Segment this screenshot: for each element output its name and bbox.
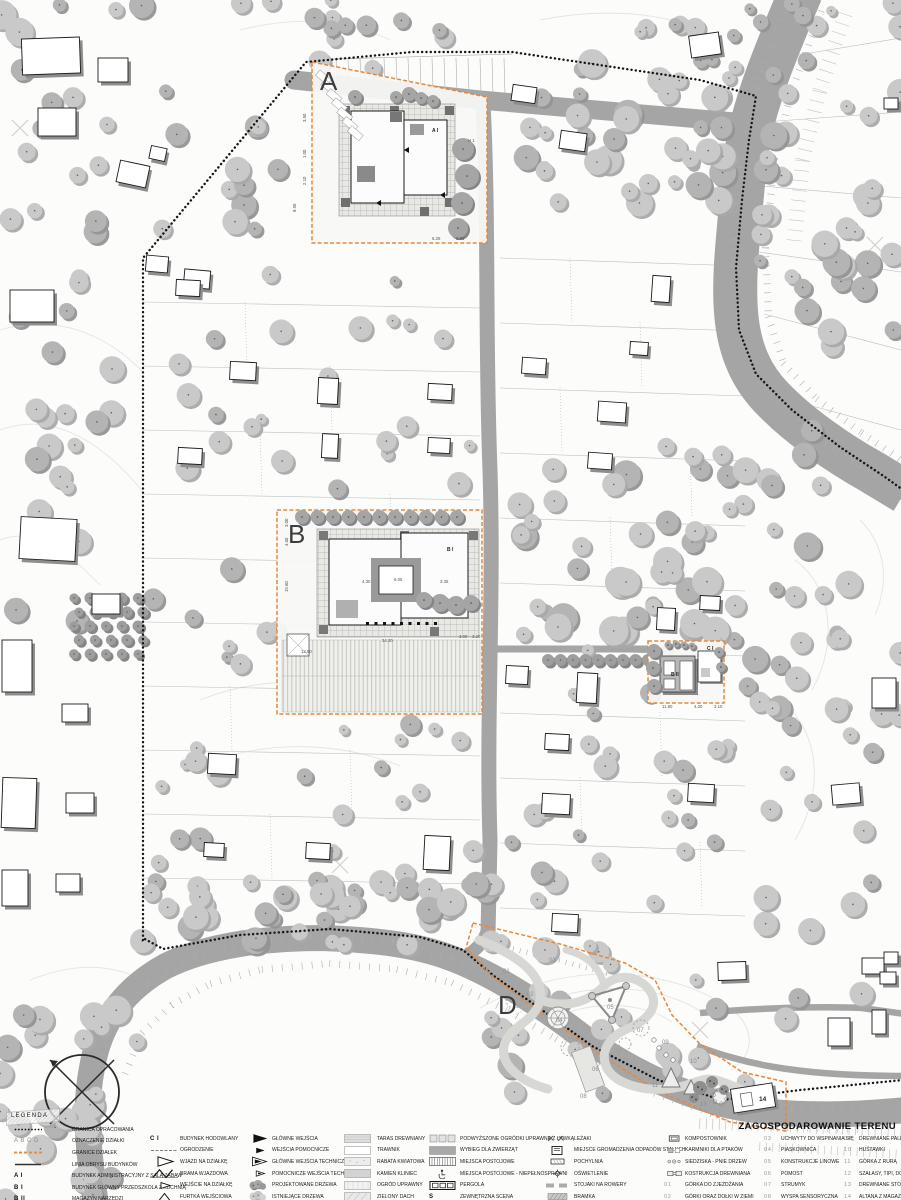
map-label: D <box>498 990 517 1020</box>
map-label: 03 <box>549 958 556 964</box>
site-plan-page: ABDA IB IC IB II148.903.501.002.106.255.… <box>0 0 901 1200</box>
map-label: 09 <box>662 1040 669 1046</box>
map-label: A I <box>432 128 439 134</box>
map-label: 14 <box>759 1096 767 1103</box>
site-plan-drawing: ABDA IB IC IB II148.903.501.002.106.255.… <box>0 0 901 1200</box>
map-label: 06 <box>592 1067 599 1073</box>
map-label: 13 <box>700 1102 707 1108</box>
map-label: C I <box>707 646 714 652</box>
map-label: B <box>288 519 305 549</box>
map-label: 3.50 <box>302 113 307 122</box>
map-label: 04 <box>556 1018 563 1024</box>
map-label: 3.00 <box>459 634 468 639</box>
map-label: 19.60 <box>284 581 289 592</box>
map-label: 3.10 <box>714 704 723 709</box>
map-label: 08 <box>580 1094 587 1100</box>
map-label: 4.30 <box>362 579 371 584</box>
map-label: 05 <box>607 1005 614 1011</box>
map-label: 4.60 <box>284 537 289 546</box>
map-label: 1.00 <box>302 149 307 158</box>
map-label: B I <box>447 547 454 553</box>
map-label: A <box>320 66 338 96</box>
map-label: 11.80 <box>662 704 673 709</box>
map-label: 8.90 <box>292 203 297 212</box>
map-label: 12.50 <box>301 649 312 654</box>
map-label: 6.25 <box>432 236 441 241</box>
map-label: 3.00 <box>284 518 289 527</box>
map-label: 2.10 <box>302 176 307 185</box>
map-label: 3.20 <box>472 634 481 639</box>
map-label: 6.05 <box>394 577 403 582</box>
map-label: 11 <box>652 1083 659 1089</box>
map-label: 01 <box>503 969 510 975</box>
map-label: 34.30 <box>382 638 393 643</box>
map-label: 3.35 <box>440 579 449 584</box>
map-label: 10 <box>690 1059 697 1065</box>
map-label: 5.00 <box>456 236 465 241</box>
map-label: 4.20 <box>694 704 703 709</box>
map-label: B II <box>671 672 679 678</box>
map-label: 12 <box>718 1088 725 1094</box>
map-label: H 1 <box>468 138 475 143</box>
map-label: 02 <box>527 992 534 998</box>
map-label: 07 <box>637 1028 644 1034</box>
